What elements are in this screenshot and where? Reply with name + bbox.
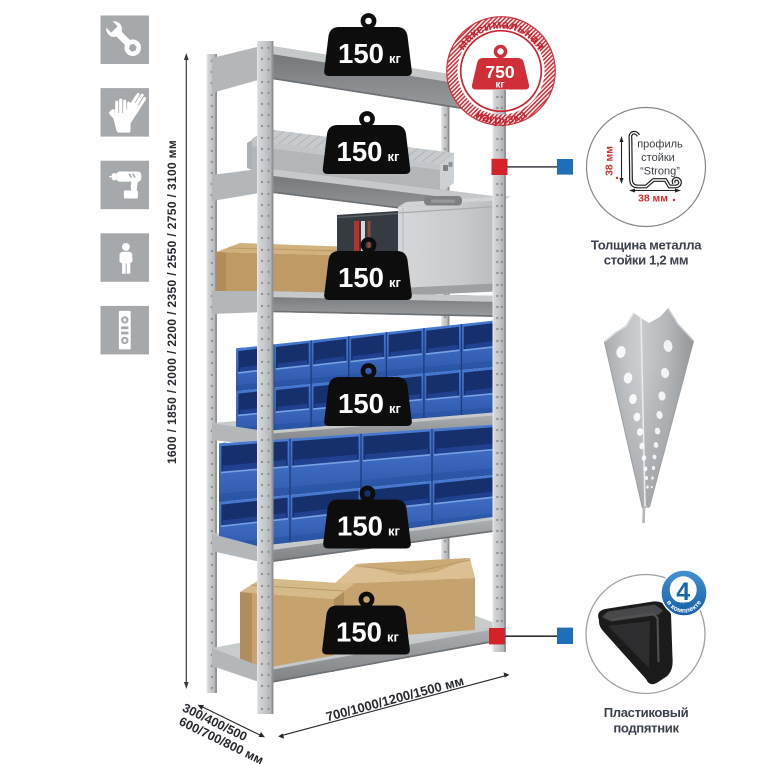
svg-text:кг: кг	[389, 401, 402, 416]
svg-text:38 мм: 38 мм	[638, 194, 668, 205]
svg-text:150: 150	[338, 262, 384, 293]
svg-text:150: 150	[338, 38, 384, 69]
svg-text:стойки: стойки	[641, 152, 675, 164]
svg-text:кг: кг	[495, 80, 504, 91]
svg-text:кг: кг	[388, 524, 401, 539]
svg-text:38 мм: 38 мм	[605, 146, 616, 176]
svg-text:кг: кг	[389, 275, 402, 290]
svg-text:“Strong”: “Strong”	[640, 166, 680, 178]
svg-text:кг: кг	[387, 630, 400, 645]
svg-text:150: 150	[337, 136, 383, 167]
svg-text:стойки 1,2 мм: стойки 1,2 мм	[604, 253, 688, 268]
svg-text:Пластиковый: Пластиковый	[604, 705, 689, 720]
svg-text:кг: кг	[389, 51, 402, 66]
svg-text:штуки: штуки	[677, 600, 691, 605]
svg-text:1600 / 1850 / 2000 / 2200 / 23: 1600 / 1850 / 2000 / 2200 / 2350 / 2550 …	[165, 140, 179, 464]
svg-text:150: 150	[338, 388, 384, 419]
svg-text:кг: кг	[388, 149, 401, 164]
svg-text:профиль: профиль	[637, 139, 683, 151]
svg-text:Толщина металла: Толщина металла	[591, 238, 702, 253]
svg-text:подпятник: подпятник	[613, 721, 679, 736]
svg-text:150: 150	[336, 617, 382, 648]
svg-text:150: 150	[337, 511, 383, 542]
